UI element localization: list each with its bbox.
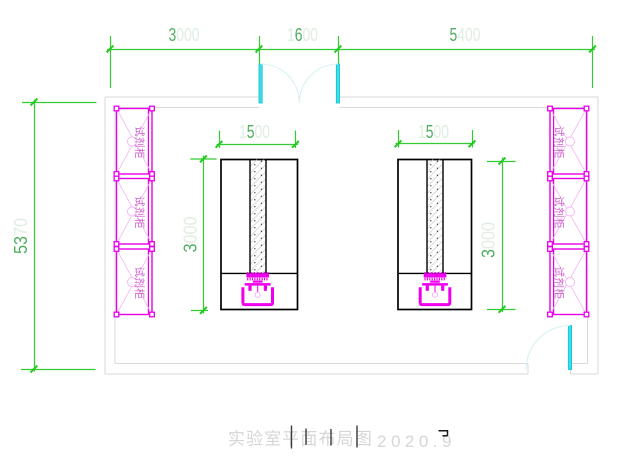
svg-text:1500: 1500	[418, 121, 449, 142]
svg-text:1500: 1500	[239, 121, 270, 142]
svg-text:5370: 5370	[10, 218, 31, 254]
svg-text:5400: 5400	[450, 24, 481, 45]
svg-text:3000: 3000	[169, 24, 200, 45]
svg-text:3000: 3000	[180, 217, 201, 253]
svg-text:实验室平面布局图: 实验室平面布局图	[228, 430, 373, 449]
svg-text:3000: 3000	[478, 222, 499, 258]
svg-text:2020.9: 2020.9	[377, 432, 456, 451]
svg-text:1600: 1600	[287, 24, 318, 45]
